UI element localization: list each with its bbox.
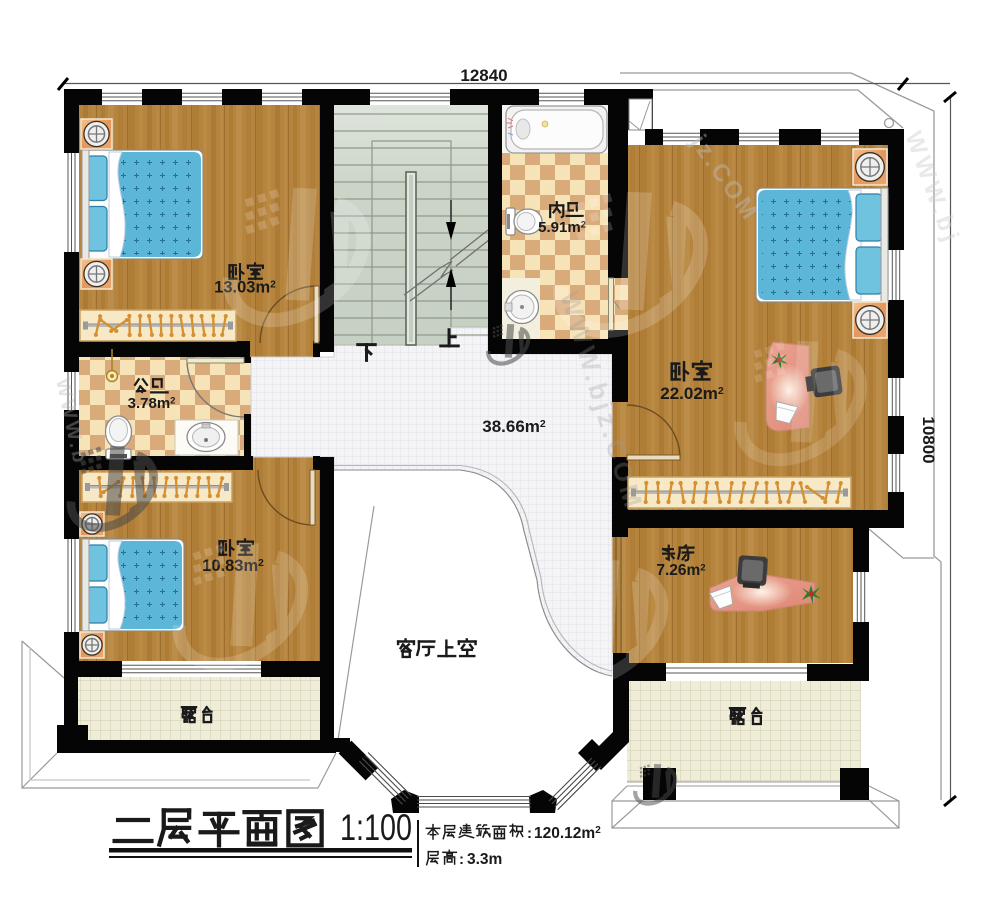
svg-text:10800: 10800 (919, 416, 938, 463)
svg-text:22.02m2: 22.02m2 (660, 384, 724, 403)
svg-text::: : (459, 851, 464, 868)
svg-text::: : (527, 825, 532, 842)
svg-text:3.78m2: 3.78m2 (128, 395, 176, 412)
svg-text:12840: 12840 (460, 66, 507, 85)
svg-text:7.26m2: 7.26m2 (656, 562, 705, 579)
svg-text:38.66m2: 38.66m2 (482, 417, 546, 436)
svg-text:120.12m2: 120.12m2 (534, 825, 601, 842)
svg-text:3.3m: 3.3m (467, 851, 502, 868)
svg-text:1:100: 1:100 (340, 807, 412, 848)
